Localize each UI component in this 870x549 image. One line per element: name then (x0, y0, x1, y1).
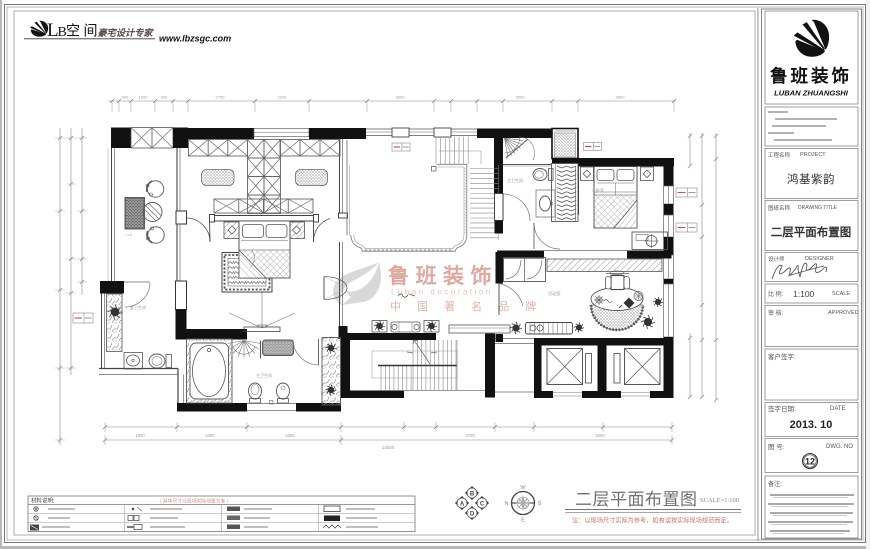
svg-text:注：以现场尺寸实际为参考，如有误按实际现场规范而定。: 注：以现场尺寸实际为参考，如有误按实际现场规范而定。 (572, 517, 733, 525)
svg-text:材料说明:: 材料说明: (31, 497, 55, 505)
svg-text:S: S (538, 501, 542, 507)
svg-text:PROJECT: PROJECT (800, 152, 826, 158)
svg-text:图纸名称: 图纸名称 (768, 204, 791, 212)
svg-text:900: 900 (122, 95, 129, 100)
svg-text:3400: 3400 (595, 433, 605, 438)
svg-text:12: 12 (805, 457, 815, 467)
svg-text:二层平面布置图: 二层平面布置图 (575, 490, 698, 509)
svg-text:活动室: 活动室 (548, 290, 561, 297)
svg-text:( 具体尺寸以现场实际测量为准 ): ( 具体尺寸以现场实际测量为准 ) (160, 498, 229, 505)
svg-text:鲁班装饰: 鲁班装饰 (770, 66, 852, 86)
svg-text:N: N (505, 501, 509, 507)
svg-text:中 国 著 名 品 牌: 中 国 著 名 品 牌 (390, 299, 543, 313)
svg-text:鲁班装饰: 鲁班装饰 (388, 264, 498, 288)
svg-text:设计师: 设计师 (768, 255, 785, 263)
svg-text:DWG. NO: DWG. NO (826, 444, 853, 450)
svg-text:2100: 2100 (278, 95, 288, 100)
svg-text:2700: 2700 (216, 95, 226, 100)
svg-text:B: B (470, 491, 475, 497)
svg-text:空 间: 空 间 (66, 24, 98, 40)
svg-text:备注:: 备注: (768, 480, 782, 488)
svg-text:A: A (460, 501, 465, 507)
svg-text:鸿基紫韵: 鸿基紫韵 (787, 172, 835, 186)
svg-text:SCALE=1:100: SCALE=1:100 (700, 497, 739, 504)
svg-text:www.lbzsgc.com: www.lbzsgc.com (159, 34, 231, 44)
svg-text:DRAWING TITLE: DRAWING TITLE (798, 205, 838, 211)
svg-text:~×4: ~×4 (125, 232, 133, 237)
svg-text:3300: 3300 (396, 95, 406, 100)
svg-text:2300: 2300 (285, 433, 295, 438)
svg-text:二层平面布置图: 二层平面布置图 (771, 225, 852, 239)
svg-text:C: C (480, 501, 485, 507)
svg-text:客户签字:: 客户签字: (768, 352, 796, 361)
svg-text:DATE: DATE (830, 406, 846, 412)
svg-text:1200: 1200 (139, 95, 149, 100)
svg-text:1:100: 1:100 (793, 289, 815, 299)
svg-text:2500: 2500 (516, 95, 526, 100)
svg-text:审 核:: 审 核: (768, 309, 784, 317)
svg-text:2400: 2400 (205, 433, 215, 438)
svg-text:900: 900 (161, 95, 168, 100)
svg-text:D: D (470, 511, 475, 517)
svg-text:次卧室: 次卧室 (592, 187, 604, 193)
svg-text:主卫生间: 主卫生间 (256, 372, 272, 378)
svg-text:豪宅设计专家: 豪宅设计专家 (98, 27, 155, 38)
svg-text:工程名称: 工程名称 (768, 151, 791, 159)
svg-text:APPROVED: APPROVED (828, 310, 859, 316)
svg-text:DESIGNER: DESIGNER (805, 256, 834, 262)
svg-text:主卫生间: 主卫生间 (507, 177, 523, 183)
svg-text:比 例:: 比 例: (768, 290, 784, 298)
svg-text:1800: 1800 (135, 433, 145, 438)
svg-text:Luban decoration: Luban decoration (391, 288, 493, 297)
svg-text:LUBAN ZHUANGSHI: LUBAN ZHUANGSHI (774, 89, 849, 98)
svg-text:E: E (521, 518, 525, 524)
svg-text:W: W (520, 485, 526, 491)
svg-text:签字日期:: 签字日期: (768, 404, 796, 413)
svg-text:SCALE: SCALE (832, 291, 850, 297)
svg-text:图 号:: 图 号: (768, 443, 785, 451)
svg-text:2013. 10: 2013. 10 (790, 419, 833, 431)
svg-text:14500: 14500 (382, 445, 395, 450)
svg-text:客卫生间: 客卫生间 (130, 304, 146, 310)
svg-text:3700: 3700 (465, 433, 475, 438)
svg-text:3600: 3600 (616, 95, 626, 100)
